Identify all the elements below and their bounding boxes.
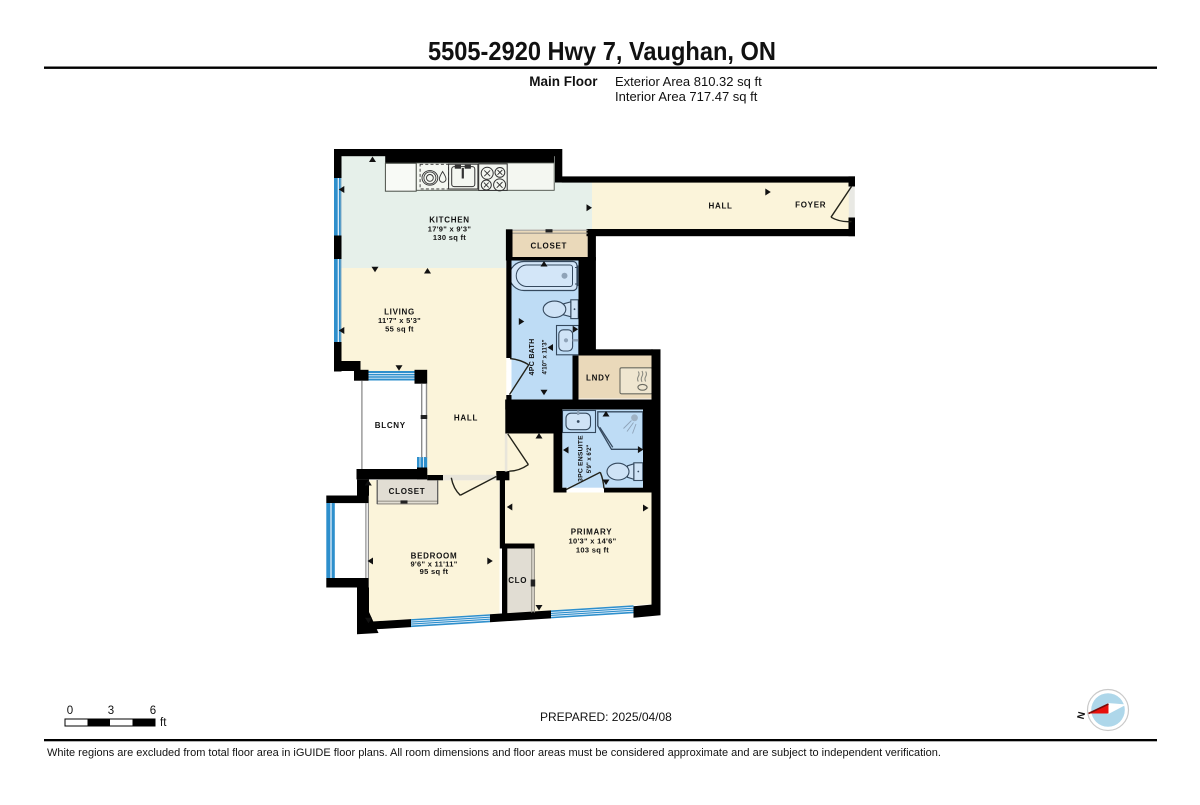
svg-text:PRIMARY: PRIMARY bbox=[571, 528, 613, 537]
svg-text:White regions are excluded fro: White regions are excluded from total fl… bbox=[47, 747, 941, 759]
svg-text:0: 0 bbox=[67, 705, 73, 717]
svg-text:BLCNY: BLCNY bbox=[375, 421, 406, 430]
svg-text:130 sq ft: 130 sq ft bbox=[433, 233, 466, 242]
svg-text:5505-2920 Hwy 7, Vaughan, ON: 5505-2920 Hwy 7, Vaughan, ON bbox=[428, 36, 776, 66]
svg-text:Main Floor: Main Floor bbox=[529, 74, 598, 89]
svg-text:KITCHEN: KITCHEN bbox=[429, 216, 469, 225]
svg-text:Interior Area 717.47 sq ft: Interior Area 717.47 sq ft bbox=[615, 89, 758, 104]
svg-text:ft: ft bbox=[160, 717, 167, 729]
svg-text:HALL: HALL bbox=[454, 414, 478, 423]
svg-text:LNDY: LNDY bbox=[586, 374, 611, 383]
svg-text:4'10" x 11'3": 4'10" x 11'3" bbox=[543, 339, 549, 374]
svg-text:6: 6 bbox=[150, 705, 156, 717]
svg-text:10'3" x 14'6": 10'3" x 14'6" bbox=[569, 537, 617, 546]
svg-text:5'9" x 6'2": 5'9" x 6'2" bbox=[587, 445, 593, 474]
svg-text:3PC ENSUITE: 3PC ENSUITE bbox=[578, 435, 585, 482]
svg-text:CLOSET: CLOSET bbox=[389, 487, 426, 496]
svg-text:55 sq ft: 55 sq ft bbox=[385, 325, 414, 334]
svg-text:95 sq ft: 95 sq ft bbox=[420, 567, 449, 576]
svg-text:HALL: HALL bbox=[709, 202, 733, 211]
svg-text:CLOSET: CLOSET bbox=[530, 242, 567, 251]
svg-text:PREPARED: 2025/04/08: PREPARED: 2025/04/08 bbox=[540, 710, 672, 724]
svg-text:3: 3 bbox=[108, 705, 114, 717]
svg-text:4PC BATH: 4PC BATH bbox=[529, 339, 536, 376]
svg-text:FOYER: FOYER bbox=[795, 201, 826, 210]
svg-text:103 sq ft: 103 sq ft bbox=[576, 546, 609, 555]
svg-text:CLO: CLO bbox=[508, 576, 527, 585]
svg-text:Exterior Area 810.32 sq ft: Exterior Area 810.32 sq ft bbox=[615, 74, 762, 89]
